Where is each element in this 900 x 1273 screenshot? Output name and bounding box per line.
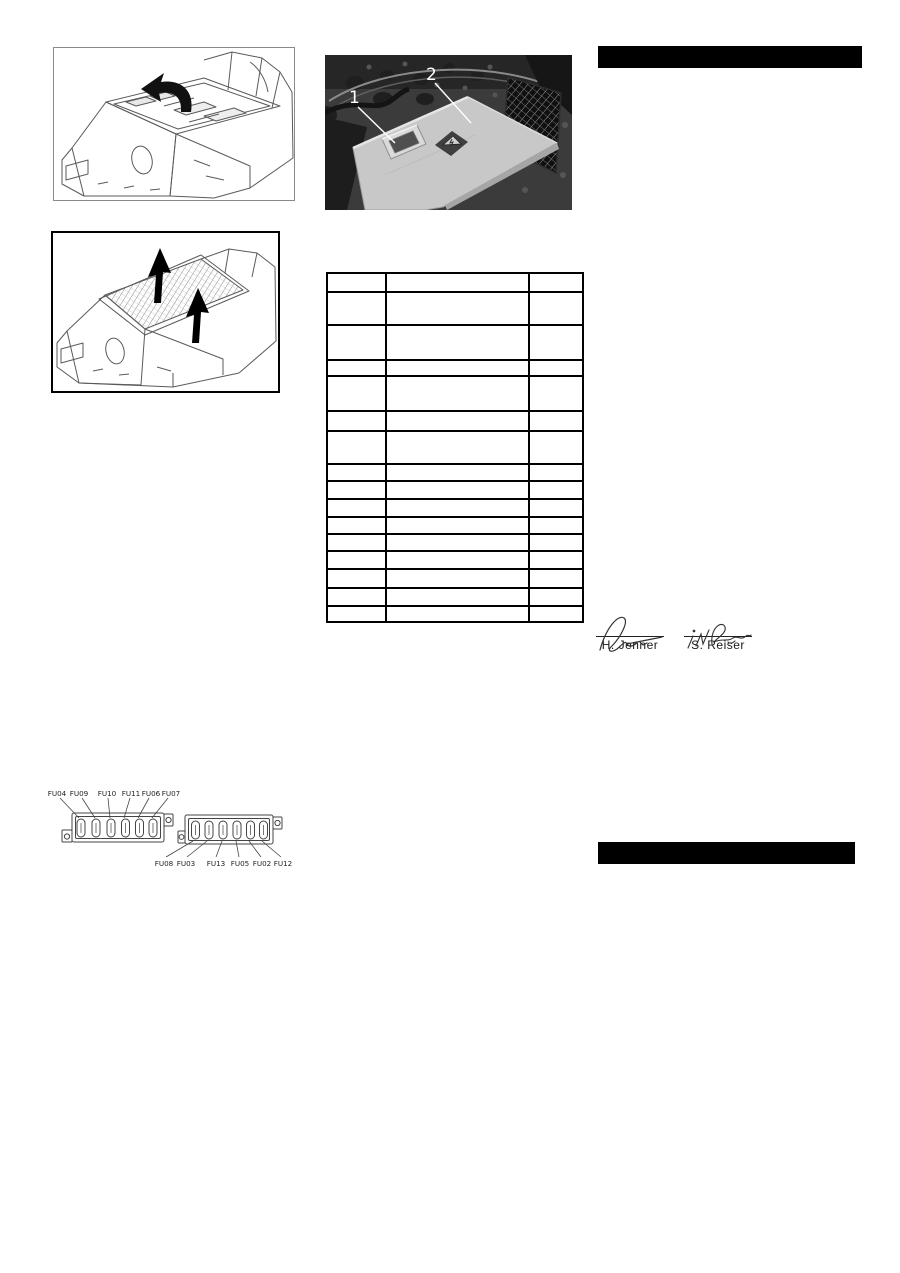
table-cell (386, 534, 529, 551)
table-cell (529, 360, 583, 376)
figure-open-cover (53, 47, 295, 201)
open-cover-illustration (54, 48, 294, 200)
table-cell (327, 551, 386, 569)
table-row (327, 376, 583, 411)
callout-1-label: 1 (349, 88, 360, 108)
fuse-label: FU09 (70, 789, 89, 798)
table-cell (386, 292, 529, 325)
table-cell (529, 411, 583, 431)
jenner-signature-scribble (596, 612, 664, 652)
table-row (327, 569, 583, 588)
table-cell (386, 376, 529, 411)
table-cell (529, 273, 583, 292)
signature-jenner: H. Jenner (596, 596, 664, 652)
table-cell (327, 569, 386, 588)
table-cell (529, 569, 583, 588)
table-cell (529, 551, 583, 569)
manual-page: { "page": { "background": "#ffffff", "ba… (0, 0, 900, 1273)
fuse-label: FU05 (231, 859, 250, 868)
table-cell (529, 606, 583, 622)
table-cell (386, 569, 529, 588)
table-cell (386, 588, 529, 606)
signature-reiser: S. Reiser (684, 596, 752, 652)
table-cell (327, 588, 386, 606)
table-cell (529, 431, 583, 464)
photo-canvas: 1 2 (325, 55, 572, 210)
table-row (327, 273, 583, 292)
table-row (327, 325, 583, 360)
table-cell (386, 431, 529, 464)
table-row (327, 481, 583, 499)
engine-compartment-photo: 1 2 (325, 55, 572, 210)
table-cell (529, 517, 583, 534)
leader-lines-top (60, 798, 168, 818)
table-cell (386, 517, 529, 534)
table-cell (386, 551, 529, 569)
table-cell (327, 273, 386, 292)
section-header-bar-top (598, 46, 862, 68)
fuse-label: FU13 (207, 859, 226, 868)
fuse-label: FU04 (48, 789, 67, 798)
table-cell (529, 292, 583, 325)
table-cell (386, 481, 529, 499)
screw-hole (275, 820, 280, 825)
table-cell (529, 481, 583, 499)
table-cell (386, 273, 529, 292)
screw-hole (64, 834, 69, 839)
table-cell (529, 376, 583, 411)
reiser-signature-scribble (684, 618, 752, 652)
signature-line (684, 596, 752, 637)
signature-block: H. Jenner S. Reiser (596, 596, 766, 660)
table-cell (327, 481, 386, 499)
fuse-label: FU02 (253, 859, 272, 868)
table-cell (327, 325, 386, 360)
table-cell (327, 606, 386, 622)
table-cell (386, 464, 529, 481)
remove-grid-illustration (53, 233, 278, 391)
callout-2-label: 2 (426, 65, 437, 85)
fuse-label: FU03 (177, 859, 196, 868)
table-row (327, 517, 583, 534)
flip-arrow (141, 73, 192, 112)
table-row (327, 534, 583, 551)
table-row (327, 464, 583, 481)
fuse-label: FU10 (98, 789, 117, 798)
table-cell (327, 411, 386, 431)
table-cell (327, 499, 386, 517)
table-row (327, 551, 583, 569)
table-row (327, 588, 583, 606)
table-row (327, 606, 583, 622)
table-cell (327, 534, 386, 551)
fuse-table (326, 272, 584, 623)
fuse-label: FU06 (142, 789, 161, 798)
table-cell (327, 431, 386, 464)
table-cell (327, 517, 386, 534)
fuse-box-diagram: FU04 FU09 FU10 FU11 FU06 FU07 FU08 FU03 … (42, 783, 302, 878)
table-cell (529, 534, 583, 551)
table-cell (327, 292, 386, 325)
table-cell (386, 325, 529, 360)
table-cell (386, 360, 529, 376)
table-cell (529, 325, 583, 360)
table-cell (386, 606, 529, 622)
table-cell (386, 499, 529, 517)
table-row (327, 431, 583, 464)
table-cell (327, 360, 386, 376)
fuse-label: FU08 (155, 859, 174, 868)
table-row (327, 360, 583, 376)
screw-hole (166, 817, 171, 822)
table-cell (529, 464, 583, 481)
fuse-label: FU12 (274, 859, 293, 868)
signature-line (596, 596, 664, 637)
table-cell (327, 464, 386, 481)
figure-remove-grid (51, 231, 280, 393)
screw-hole (179, 835, 184, 840)
table-row (327, 411, 583, 431)
table-cell (386, 411, 529, 431)
table-cell (529, 499, 583, 517)
fuse-diagram-canvas: FU04 FU09 FU10 FU11 FU06 FU07 FU08 FU03 … (42, 783, 302, 878)
table-cell (529, 588, 583, 606)
table-cell (327, 376, 386, 411)
fuse-block-right (178, 815, 282, 844)
section-header-bar-bottom (598, 842, 855, 864)
table-row (327, 292, 583, 325)
fuse-label: FU11 (122, 789, 141, 798)
table-row (327, 499, 583, 517)
fuse-label: FU07 (162, 789, 181, 798)
